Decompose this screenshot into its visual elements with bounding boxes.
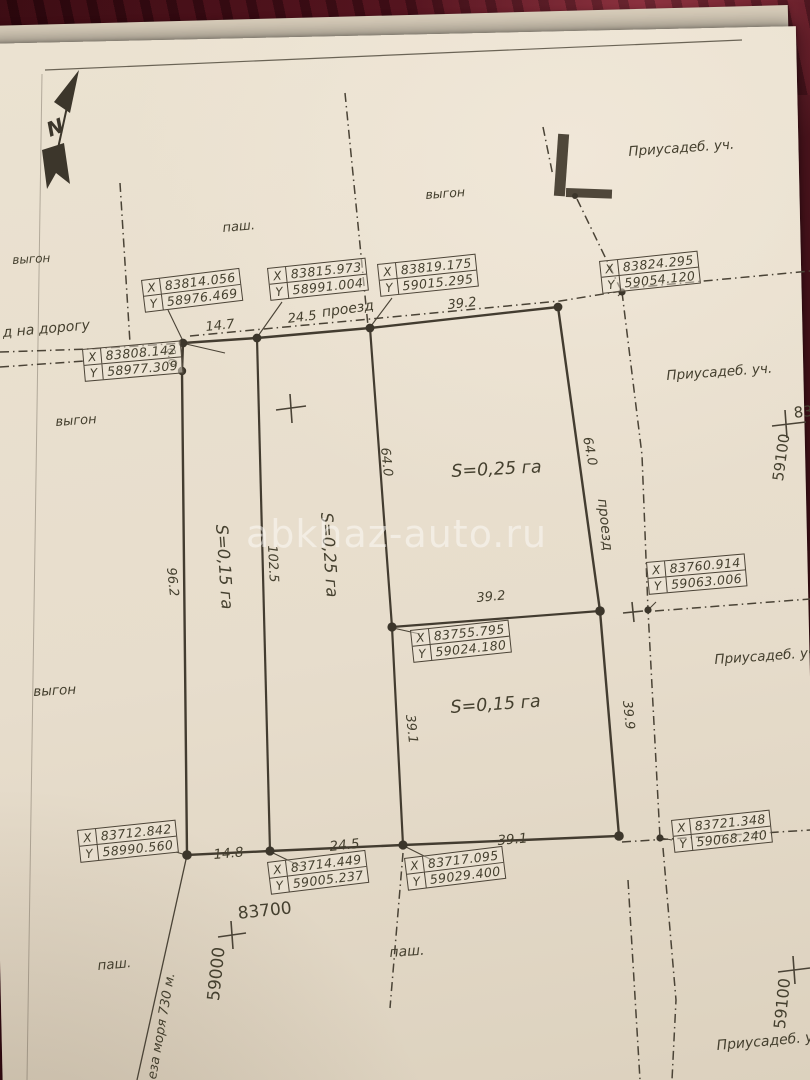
label-vygon-top-left: выгон — [12, 252, 51, 266]
grid-crosses — [218, 394, 810, 984]
coord-x-label: X — [672, 819, 691, 836]
dim-inner-mid-upper: 64.0 — [378, 447, 394, 477]
dim-top-1: 14.7 — [205, 318, 235, 334]
coord-x-label: X — [78, 829, 97, 846]
frame-left-line — [27, 74, 42, 1080]
label-pash-bottom-left: паш. — [97, 957, 132, 973]
coord-x-label: X — [411, 629, 430, 646]
coord-y-label: Y — [648, 577, 667, 594]
coord-y-label: Y — [407, 873, 427, 890]
coord-y-label: Y — [674, 835, 693, 852]
coord-x-label: X — [647, 561, 666, 578]
parcel-boundaries — [182, 307, 619, 855]
coord-y-label: Y — [270, 877, 290, 894]
coord-x-label: X — [268, 267, 287, 284]
label-vygon-top-center: выгон — [425, 186, 465, 201]
frame-top-line — [45, 40, 742, 70]
coord-y-label: Y — [602, 276, 621, 293]
dim-left-side: 96.2 — [164, 567, 180, 597]
grid-x-right-cut: 83 — [793, 404, 810, 421]
dim-top-2: 24.5 — [287, 309, 317, 325]
photo-of-survey-plan: N — [0, 0, 810, 1080]
watermark: abkhaz-auto.ru — [246, 512, 547, 556]
coord-y-label: Y — [413, 645, 432, 662]
coord-x-label: X — [600, 260, 619, 277]
dim-mid-cross: 39.2 — [476, 589, 506, 604]
coord-x-label: X — [405, 857, 425, 874]
label-pash-bottom-center: паш. — [389, 944, 425, 960]
coord-y-label: Y — [270, 283, 289, 300]
label-pash-top: паш. — [222, 219, 256, 235]
coord-x-label: X — [378, 263, 397, 280]
coord-y-label: Y — [144, 295, 164, 312]
coord-x-label: X — [142, 279, 162, 296]
dim-inner-mid-lower: 39.1 — [403, 714, 419, 744]
hatched-bar-icon — [554, 134, 612, 199]
coord-y-label: Y — [84, 364, 103, 381]
dim-top-3: 39.2 — [447, 296, 477, 312]
dim-bottom-1: 14.8 — [213, 846, 244, 862]
coord-x-label: X — [83, 348, 102, 365]
coord-y-label: Y — [380, 279, 399, 296]
coord-y-label: Y — [80, 845, 99, 862]
coord-x-label: X — [268, 861, 288, 878]
dim-right-lower-side: 39.9 — [620, 700, 636, 730]
north-arrow-icon: N — [42, 70, 79, 189]
label-vygon-left-mid: выгон — [55, 413, 97, 429]
label-vygon-left-lower: выгон — [33, 684, 76, 700]
